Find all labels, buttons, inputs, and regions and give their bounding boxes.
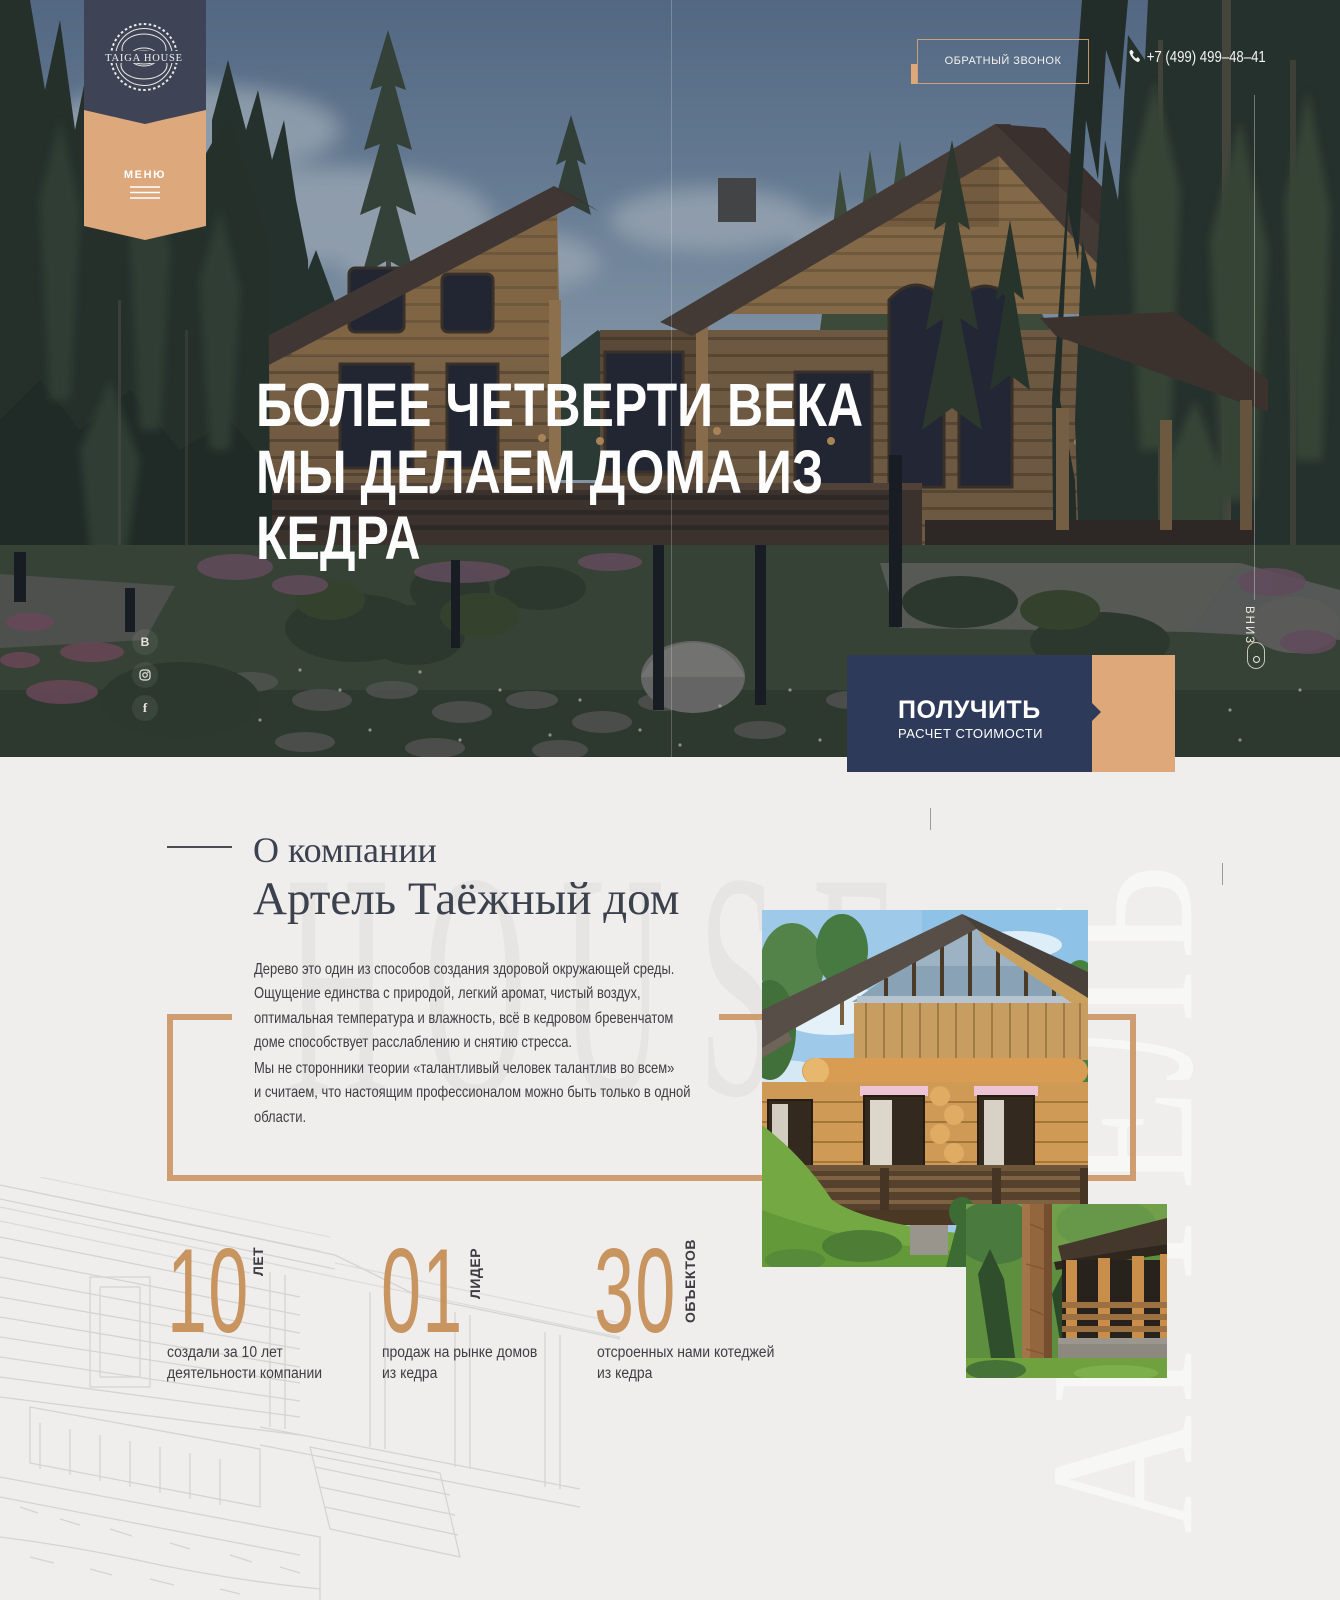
svg-text:TAIGA HOUSE: TAIGA HOUSE xyxy=(105,53,183,64)
svg-text:МЕНЮ: МЕНЮ xyxy=(124,169,166,181)
